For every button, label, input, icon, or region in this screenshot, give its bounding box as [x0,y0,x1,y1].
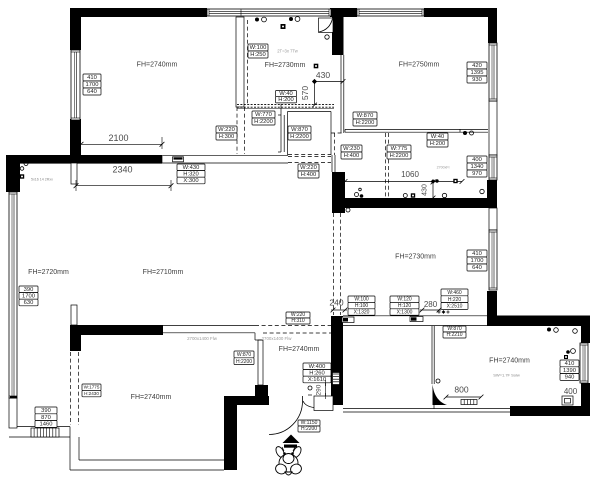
svg-text:H:2200: H:2200 [390,153,409,159]
svg-text:H:310: H:310 [291,318,305,324]
svg-text:FH=2730mm: FH=2730mm [265,62,306,69]
svg-text:410: 410 [565,361,575,367]
svg-text:H:200: H:200 [430,141,445,147]
svg-text:870: 870 [41,415,51,421]
svg-text:630: 630 [24,300,34,306]
svg-text:H:300: H:300 [219,134,234,140]
svg-text:FH=2750mm: FH=2750mm [399,62,440,69]
svg-text:FH=2740mm: FH=2740mm [279,346,320,353]
svg-text:W:460: W:460 [447,290,462,296]
svg-text:H:2200: H:2200 [301,426,317,432]
svg-text:390: 390 [24,287,34,293]
svg-text:420: 420 [472,63,482,69]
svg-text:SW=1.7F Solw: SW=1.7F Solw [493,373,520,378]
svg-text:400: 400 [564,387,578,396]
svg-text:640: 640 [87,89,97,95]
svg-text:570: 570 [300,86,310,100]
svg-text:430: 430 [316,70,330,80]
svg-text:2T=3x 7Tw: 2T=3x 7Tw [277,49,299,54]
svg-text:W:40: W:40 [279,91,292,97]
svg-text:W:870: W:870 [237,352,252,358]
svg-text:H:320: H:320 [183,171,198,177]
svg-text:2340: 2340 [112,165,132,175]
svg-text:X:1320: X:1320 [354,309,370,315]
svg-text:H:220: H:220 [448,297,462,303]
svg-text:1340: 1340 [471,164,484,170]
svg-text:FH=2730mm: FH=2730mm [395,254,436,261]
svg-text:X:300: X:300 [183,178,198,184]
svg-text:1060: 1060 [401,170,419,179]
svg-text:W:1775: W:1775 [84,385,100,390]
svg-text:290: 290 [316,384,323,395]
svg-text:W:230: W:230 [343,146,360,152]
svg-text:W:870: W:870 [357,113,374,119]
svg-text:2700x1400 Flw: 2700x1400 Flw [187,336,218,341]
svg-text:W:775: W:775 [391,146,408,152]
svg-text:W:870: W:870 [291,127,308,133]
svg-text:1395: 1395 [471,70,484,76]
svg-text:H:400: H:400 [344,153,359,159]
svg-text:FH=2710mm: FH=2710mm [143,269,184,276]
svg-text:410: 410 [472,251,482,257]
svg-text:640: 640 [472,265,482,271]
svg-text:H:120: H:120 [398,303,412,309]
svg-text:H:2430: H:2430 [84,391,99,396]
svg-text:H:200: H:200 [278,97,293,103]
svg-text:930: 930 [472,77,482,83]
svg-text:FH=2740mm: FH=2740mm [137,62,178,69]
svg-text:240: 240 [329,298,343,308]
svg-text:W:430: W:430 [183,165,200,171]
svg-text:W:220: W:220 [218,127,235,133]
svg-text:800: 800 [454,385,468,395]
svg-text:W:220: W:220 [300,165,317,171]
svg-text:FH=2740mm: FH=2740mm [131,394,172,401]
svg-text:1700: 1700 [22,293,35,299]
svg-text:410: 410 [87,75,97,81]
svg-text:2100: 2100 [108,133,128,143]
svg-text:W:100: W:100 [354,297,369,303]
svg-text:W:40: W:40 [431,134,444,140]
svg-text:H:2210: H:2210 [446,332,462,338]
svg-text:1460: 1460 [40,422,53,428]
svg-text:2700x1400 Flw: 2700x1400 Flw [262,336,293,341]
svg-text:X:1610: X:1610 [308,377,326,383]
svg-text:H:2200: H:2200 [290,134,309,140]
svg-text:H:400: H:400 [301,172,316,178]
svg-text:1700: 1700 [86,82,99,88]
svg-text:970: 970 [472,171,482,177]
svg-text:H:2200: H:2200 [356,120,375,126]
svg-text:1700: 1700 [471,258,484,264]
svg-text:H:2200: H:2200 [236,359,252,365]
svg-text:X:1300: X:1300 [397,309,413,315]
svg-text:H:260: H:260 [309,370,324,376]
svg-text:W:770: W:770 [255,112,272,118]
svg-text:W:100: W:100 [250,45,267,51]
svg-text:H:2200: H:2200 [254,119,273,125]
svg-text:940: 940 [565,375,575,381]
svg-text:FH=2740mm: FH=2740mm [489,358,530,365]
svg-text:W:400: W:400 [309,364,326,370]
svg-text:1390: 1390 [563,368,576,374]
svg-text:W:120: W:120 [397,297,412,303]
svg-text:390: 390 [41,408,51,414]
svg-text:2700xFl: 2700xFl [437,166,450,170]
svg-text:400: 400 [472,157,482,163]
svg-text:FH=2720mm: FH=2720mm [28,269,69,276]
svg-text:X:2510: X:2510 [447,304,463,310]
svg-text:430: 430 [422,184,429,196]
svg-text:5x16 14 2Rxx: 5x16 14 2Rxx [31,178,53,182]
svg-text:280: 280 [424,300,438,309]
svg-text:H:100: H:100 [355,303,369,309]
svg-text:H:250: H:250 [250,52,265,58]
